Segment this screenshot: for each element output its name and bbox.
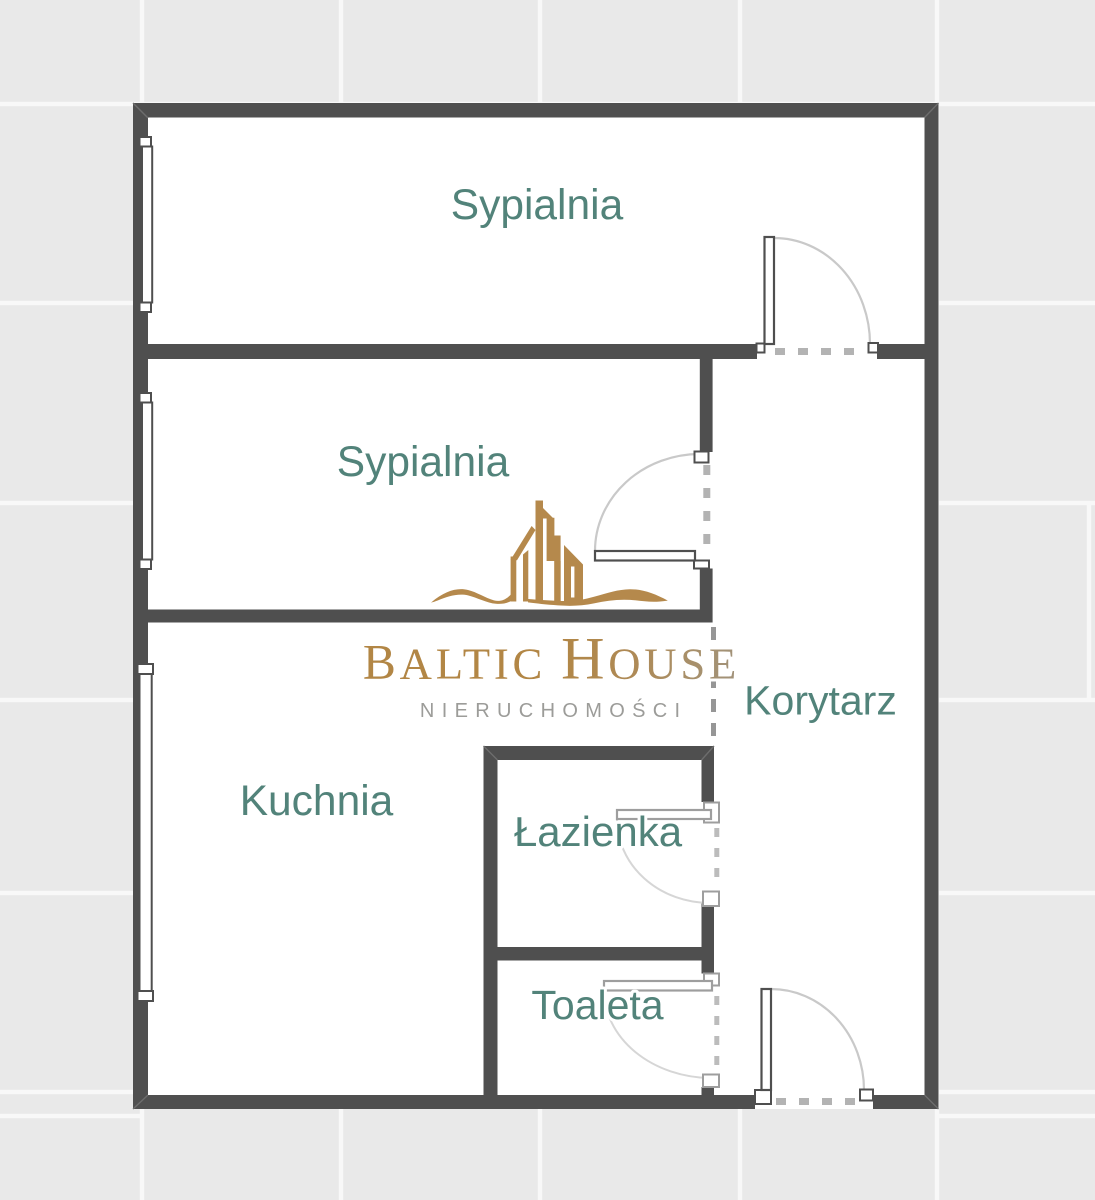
svg-text:Toaleta: Toaleta xyxy=(531,982,663,1028)
svg-text:Kuchnia: Kuchnia xyxy=(240,778,394,825)
svg-text:Sypialnia: Sypialnia xyxy=(337,439,510,486)
svg-text:Korytarz: Korytarz xyxy=(744,678,897,724)
svg-text:NIERUCHOMOŚCI: NIERUCHOMOŚCI xyxy=(420,698,688,722)
svg-text:Sypialnia: Sypialnia xyxy=(451,182,624,229)
svg-text:Łazienka: Łazienka xyxy=(514,808,683,855)
